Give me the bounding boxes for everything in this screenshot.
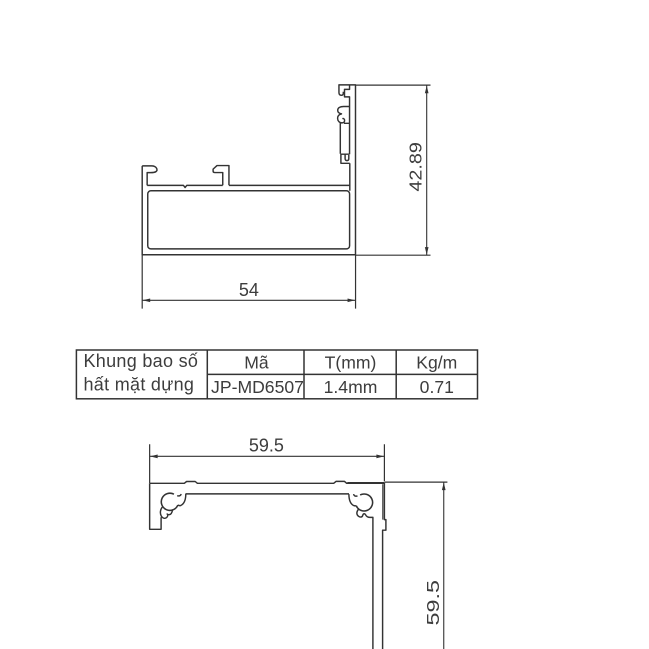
svg-text:59.5: 59.5	[249, 435, 284, 455]
svg-text:42.89: 42.89	[406, 142, 426, 192]
svg-text:hất mặt dựng: hất mặt dựng	[84, 375, 195, 395]
svg-text:Khung bao số: Khung bao số	[84, 351, 199, 371]
svg-text:0.71: 0.71	[420, 377, 454, 397]
svg-text:JP-MD6507: JP-MD6507	[211, 377, 304, 397]
svg-text:54: 54	[239, 280, 259, 300]
svg-text:Kg/m: Kg/m	[416, 352, 457, 372]
svg-text:1.4mm: 1.4mm	[324, 377, 378, 397]
svg-text:59.5: 59.5	[423, 580, 443, 626]
svg-text:T(mm): T(mm)	[325, 352, 377, 372]
svg-text:Mã: Mã	[244, 352, 269, 372]
